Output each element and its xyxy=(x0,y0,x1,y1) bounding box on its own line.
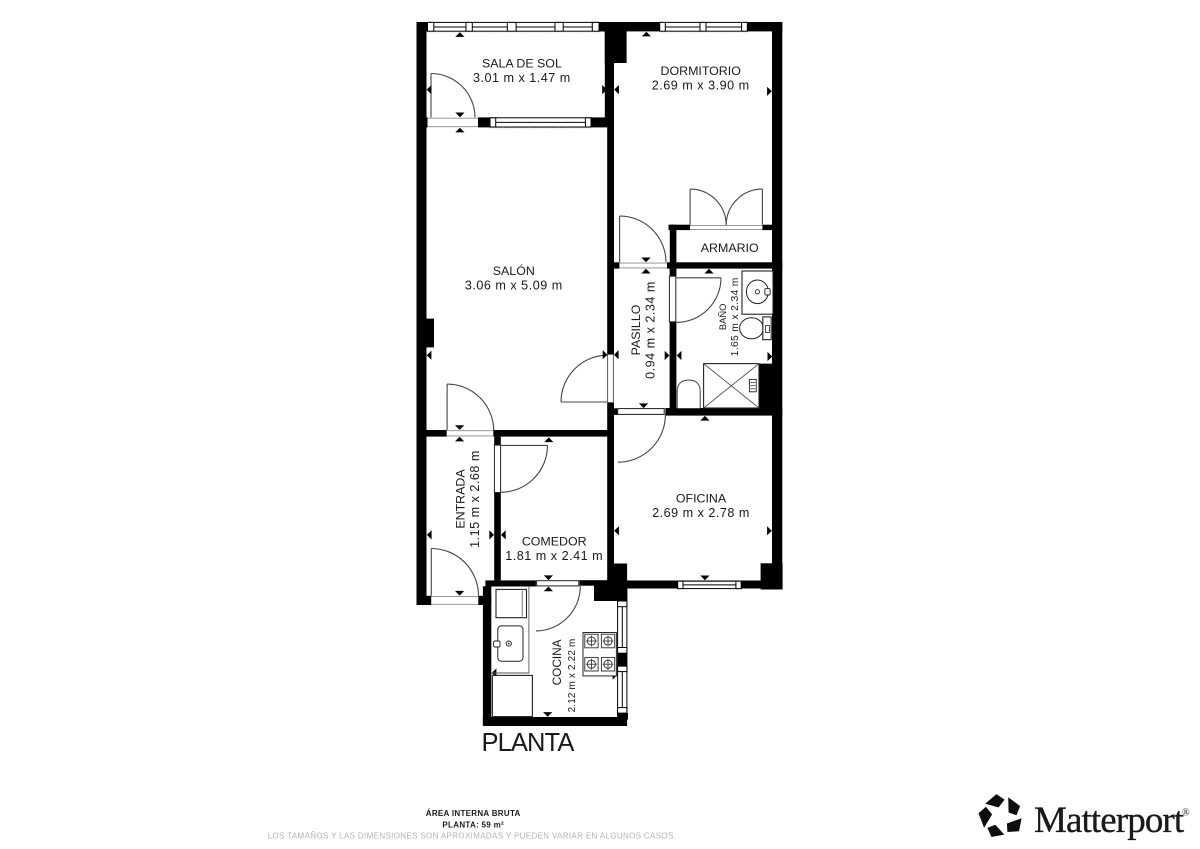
svg-text:1.81 m x 2.41 m: 1.81 m x 2.41 m xyxy=(505,549,603,563)
svg-text:3.06 m x 5.09 m: 3.06 m x 5.09 m xyxy=(465,278,563,292)
svg-text:PLANTA: PLANTA xyxy=(482,729,575,757)
svg-text:DORMITORIO: DORMITORIO xyxy=(661,64,742,78)
svg-text:0.94 m x 2.34 m: 0.94 m x 2.34 m xyxy=(643,281,657,379)
svg-text:PLANTA: 59 m²: PLANTA: 59 m² xyxy=(442,820,504,829)
svg-text:BAÑO: BAÑO xyxy=(717,304,728,331)
svg-text:1.15 m x 2.68 m: 1.15 m x 2.68 m xyxy=(468,450,482,548)
svg-text:1.65 m x 2.34 m: 1.65 m x 2.34 m xyxy=(730,277,741,356)
svg-text:Matterport: Matterport xyxy=(1034,800,1185,841)
svg-text:ARMARIO: ARMARIO xyxy=(701,241,759,255)
svg-text:OFICINA: OFICINA xyxy=(676,491,727,505)
svg-text:ÁREA INTERNA BRUTA: ÁREA INTERNA BRUTA xyxy=(426,809,521,818)
svg-text:3.01 m x 1.47 m: 3.01 m x 1.47 m xyxy=(473,71,571,85)
svg-text:ENTRADA: ENTRADA xyxy=(454,469,468,529)
svg-text:PASILLO: PASILLO xyxy=(629,304,643,355)
svg-text:2.69 m x 3.90 m: 2.69 m x 3.90 m xyxy=(652,79,750,93)
svg-text:COCINA: COCINA xyxy=(550,639,564,685)
svg-text:®: ® xyxy=(1182,808,1190,819)
svg-text:2.69 m x 2.78 m: 2.69 m x 2.78 m xyxy=(652,506,750,520)
svg-text:LOS TAMAÑOS Y LAS DIMENSIONES: LOS TAMAÑOS Y LAS DIMENSIONES SON APROXI… xyxy=(268,831,677,840)
svg-text:COMEDOR: COMEDOR xyxy=(522,535,587,549)
svg-text:SALA DE SOL: SALA DE SOL xyxy=(482,56,562,70)
svg-text:2.12 m x 2.22 m: 2.12 m x 2.22 m xyxy=(567,639,578,713)
svg-text:SALÓN: SALÓN xyxy=(493,263,535,278)
